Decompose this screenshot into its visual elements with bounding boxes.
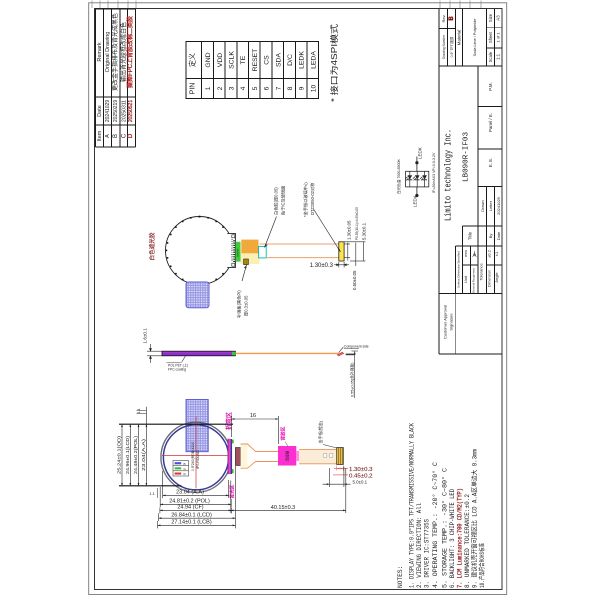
svg-text:24.81±0.2 (POL): 24.81±0.2 (POL)	[169, 499, 210, 505]
svg-text:23.04(A.A): 23.04(A.A)	[141, 438, 146, 471]
svg-text:5.0±0.1: 5.0±0.1	[353, 480, 368, 485]
svg-text:1.1: 1.1	[150, 492, 155, 496]
svg-text:白光色温:7000-8500K: 白光色温:7000-8500K	[396, 158, 401, 194]
svg-text:0.9" TFT 圆屏: 0.9" TFT 圆屏	[450, 36, 454, 57]
svg-text:定义: 定义	[188, 53, 197, 67]
svg-text:2: 2	[217, 86, 224, 90]
svg-text:20241029: 20241029	[105, 100, 111, 122]
svg-text:D/C: D/C	[287, 54, 294, 66]
svg-text:3. DRIVER IC:ST7735S: 3. DRIVER IC:ST7735S	[424, 519, 431, 588]
svg-text:5. STORAGE TEMP.: -30° C~80°: 5. STORAGE TEMP.: -30° C~80° C	[442, 468, 449, 588]
svg-text:Date: Date	[97, 105, 103, 117]
svg-text:Original Drawing: Original Drawing	[105, 32, 111, 73]
svg-text:GND: GND	[205, 52, 212, 67]
svg-text:±0.2: ±0.2	[486, 249, 491, 258]
svg-text:PIN: PIN	[190, 83, 197, 95]
svg-text:5.30±0.1: 5.30±0.1	[362, 222, 367, 240]
svg-text:更改金手指排布及背光成黑色: 更改金手指排布及背光成黑色	[111, 13, 119, 91]
svg-text:P0.55(10-1)=4.95±0.05: P0.55(10-1)=4.95±0.05	[355, 207, 359, 240]
svg-text:D: D	[128, 133, 134, 138]
svg-text:补强板(黑色PI): 补强板(黑色PI)	[236, 290, 243, 318]
svg-text:20250219: 20250219	[113, 100, 119, 122]
svg-text:Scale: Scale	[488, 51, 493, 62]
svg-text:Letter: Letter	[488, 200, 493, 211]
svg-text:1.6±0.1: 1.6±0.1	[142, 328, 147, 344]
svg-text:LEDK: LEDK	[417, 147, 422, 159]
svg-text:6: 6	[264, 86, 271, 90]
svg-text:A: A	[105, 134, 111, 138]
svg-text:LEDK: LEDK	[299, 51, 306, 69]
svg-text:A3: A3	[496, 15, 501, 21]
svg-text:Remark: Remark	[97, 42, 103, 62]
svg-text:金手指(镀金): 金手指(镀金)	[317, 420, 323, 443]
svg-text:Customer Approval: Customer Approval	[443, 305, 448, 339]
svg-text:0.50±0.05: 0.50±0.05	[352, 270, 357, 290]
svg-text:1 of 1: 1 of 1	[496, 32, 501, 43]
svg-text:* 接口为4SPI模式: * 接口为4SPI模式	[329, 24, 339, 102]
svg-text:20250311: 20250311	[121, 100, 127, 122]
svg-text:CS: CS	[264, 55, 271, 65]
svg-text:P.M.: P.M.	[488, 82, 493, 90]
svg-text:24.94 (CF): 24.94 (CF)	[177, 505, 203, 511]
svg-text:LB09GR: LB09GR	[238, 248, 240, 257]
svg-text:0.45±0.2: 0.45±0.2	[349, 473, 373, 479]
svg-text:7: 7	[275, 86, 282, 90]
svg-text:Date: Date	[496, 231, 501, 240]
svg-text:4: 4	[240, 86, 247, 90]
svg-text:4. OPERATING TEMP.: -20° C~7: 4. OPERATING TEMP.: -20° C~70° C	[432, 462, 439, 588]
svg-text:20241029: 20241029	[496, 196, 501, 215]
svg-text:Unless Otherwise Specified: Unless Otherwise Specified	[457, 251, 461, 288]
svg-text:10.产品符合ROHS标准: 10.产品符合ROHS标准	[478, 543, 486, 588]
svg-text:SCLK: SCLK	[229, 51, 236, 69]
svg-text:1:1: 1:1	[496, 53, 501, 60]
svg-text:1.30±0.05: 1.30±0.05	[346, 220, 351, 240]
svg-text:24.48±0.2(POL): 24.48±0.2(POL)	[133, 435, 138, 474]
svg-text:FPC coating: FPC coating	[168, 368, 186, 372]
svg-text:General Roughness: General Roughness	[471, 267, 475, 292]
svg-text:1: 1	[205, 86, 212, 90]
svg-text:B: B	[113, 134, 119, 138]
svg-text:1.30±0.3: 1.30±0.3	[310, 263, 334, 269]
svg-text:Sheet: Sheet	[488, 31, 493, 43]
svg-text:23.04 (A.A): 23.04 (A.A)	[176, 490, 204, 496]
svg-text:24.96±0.1(LCD): 24.96±0.1(LCD)	[125, 435, 130, 474]
svg-text:6. BACKLIGHT: 3 CHIP-WHITE LED: 6. BACKLIGHT: 3 CHIP-WHITE LED	[449, 489, 456, 588]
svg-text:Soda Lime / Polyimide: Soda Lime / Polyimide	[473, 19, 477, 57]
svg-text:26.84±0.1 (LCD): 26.84±0.1 (LCD)	[171, 512, 212, 518]
svg-text:B: B	[184, 462, 186, 466]
svg-text:8: 8	[287, 86, 294, 90]
svg-text:Rev.: Rev.	[441, 15, 446, 23]
svg-text:B: B	[449, 16, 455, 21]
svg-text:NOTES:: NOTES:	[397, 566, 404, 588]
svg-text:连接器: 连接器	[285, 450, 290, 461]
svg-text:Drawn: Drawn	[480, 200, 485, 212]
svg-text:40.15±0.3: 40.15±0.3	[271, 505, 295, 511]
svg-text:白色胶(厚0.05): 白色胶(厚0.05)	[273, 187, 280, 215]
svg-text:TE: TE	[240, 55, 247, 64]
svg-text:Item: Item	[97, 130, 103, 141]
svg-text:E. E.: E. E.	[488, 158, 493, 168]
svg-text:LEDA: LEDA	[413, 195, 418, 207]
svg-text:By: By	[488, 234, 493, 239]
svg-text:LEDA: LEDA	[310, 51, 317, 69]
svg-text:Component side: Component side	[344, 345, 369, 349]
svg-text:背光区: 背光区	[228, 484, 235, 498]
svg-text:背胶区: 背胶区	[280, 426, 287, 440]
svg-text:IPS ROUND: IPS ROUND	[196, 450, 200, 469]
svg-text:Title: Title	[468, 231, 473, 240]
svg-text:RESET: RESET	[252, 49, 259, 72]
svg-text:贴于IC及玻璃面: 贴于IC及玻璃面	[280, 186, 287, 215]
svg-text:0.9"240(RGB)X210: 0.9"240(RGB)X210	[191, 442, 195, 471]
svg-text:Angle: Angle	[494, 272, 499, 283]
svg-text:Material: Material	[457, 30, 462, 46]
svg-text:SDA: SDA	[275, 53, 282, 67]
svg-text:8. UNMARKED TOLERANCE:±0.2: 8. UNMARKED TOLERANCE:±0.2	[464, 494, 471, 588]
svg-text:白色遮光胶: 白色遮光胶	[148, 232, 156, 260]
svg-text:9: 9	[299, 86, 306, 90]
svg-text:5: 5	[252, 86, 259, 90]
svg-text:9. 建议机壳开窗可视区比 LCD A.A区单边大 0.3m: 9. 建议机壳开窗可视区比 LCD A.A区单边大 0.3mm	[471, 449, 479, 588]
svg-text:1.30±0.3: 1.30±0.3	[349, 467, 373, 473]
svg-text:VDD: VDD	[217, 53, 224, 67]
svg-text:±1: ±1	[494, 251, 499, 256]
svg-text:DTC0050-02对称: DTC0050-02对称	[309, 183, 316, 215]
svg-text:1.1: 1.1	[137, 409, 141, 414]
svg-text:C: C	[121, 133, 127, 138]
svg-text:Unit: Unit	[463, 275, 468, 283]
svg-text:25.24±0.1(OD): 25.24±0.1(OD)	[117, 435, 122, 474]
svg-text:IF=20mAX3 VF=3.0-3.2V: IF=20mAX3 VF=3.0-3.2V	[432, 152, 436, 193]
svg-text:1. DISPLAY TYPE:0.9"IPS TFT/TR: 1. DISPLAY TYPE:0.9"IPS TFT/TRANSMISSIVE…	[409, 423, 416, 588]
svg-text:LB090R-IF03: LB090R-IF03	[463, 132, 471, 182]
svg-text:16: 16	[250, 413, 256, 419]
svg-text:20250521: 20250521	[128, 100, 134, 122]
svg-text:*金手指以玻璃中心: *金手指以玻璃中心	[302, 181, 309, 217]
svg-text:输出背光胶框改成白色: 输出背光胶框改成白色	[119, 22, 127, 82]
svg-text:Tolerance: Tolerance	[479, 263, 484, 281]
svg-text:10: 10	[310, 85, 317, 93]
svg-text:0.55±0.05(含补强板): 0.55±0.05(含补强板)	[349, 362, 354, 397]
svg-text:撕掉FPC上背胶改棉二类胶: 撕掉FPC上背胶改棉二类胶	[126, 16, 134, 88]
svg-text:Dimension: Dimension	[487, 270, 491, 287]
svg-text:Limito technology Inc.: Limito technology Inc.	[444, 129, 454, 221]
svg-text:Signature: Signature	[449, 313, 454, 331]
svg-text:7. LCM Luminance:700 CD/M2(TYP: 7. LCM Luminance:700 CD/M2(TYP)	[457, 488, 464, 588]
svg-text:Drawing Number: Drawing Number	[442, 34, 446, 59]
svg-text:Size: Size	[488, 13, 493, 22]
svg-text:27.14±0.1 (LCB): 27.14±0.1 (LCB)	[171, 520, 211, 526]
svg-text:3: 3	[229, 86, 236, 90]
svg-text:Panel / E.: Panel / E.	[488, 113, 493, 132]
svg-text:mm: mm	[463, 250, 468, 257]
svg-text:2. VIEWING DIRECTION: All: 2. VIEWING DIRECTION: All	[416, 503, 423, 588]
